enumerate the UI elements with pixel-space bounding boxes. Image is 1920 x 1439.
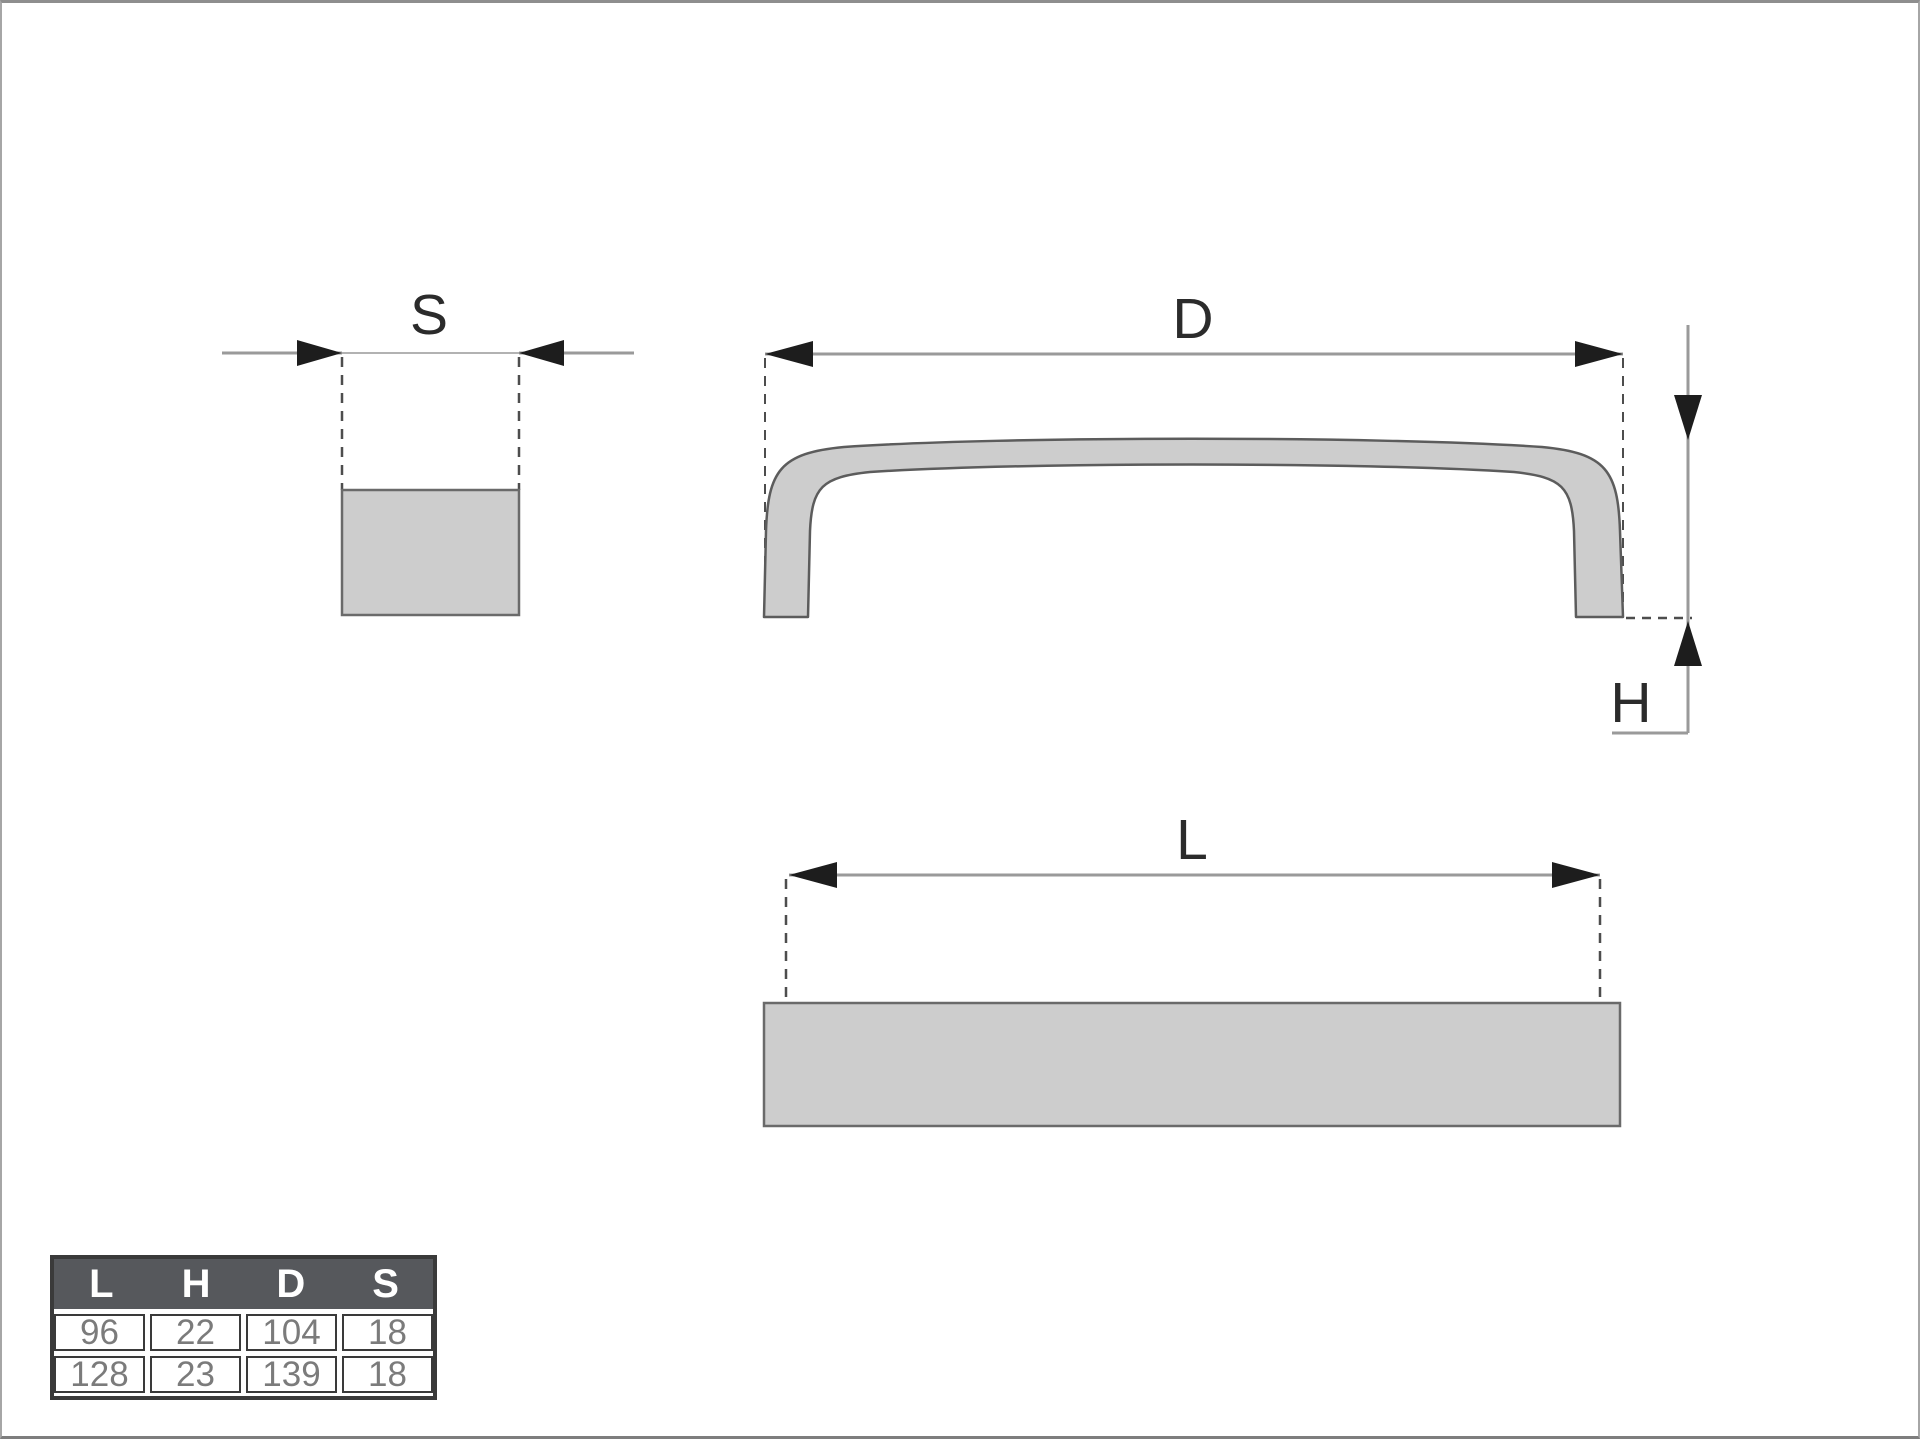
spec-table-header-h: H: [149, 1259, 244, 1309]
dim-label-d: D: [1172, 286, 1213, 352]
spec-table-header-d: D: [244, 1259, 339, 1309]
s-dimension-group: [222, 340, 634, 615]
spec-cell-d: 104: [246, 1314, 337, 1351]
l-dim-right-arrowhead: [1552, 862, 1600, 888]
spec-table-row: 128 23 139 18: [54, 1356, 433, 1393]
handle-front-view-bar: [764, 1003, 1620, 1126]
spec-table: L H D S 96 22 104 18 128 23 139 18: [50, 1255, 437, 1400]
d-dim-left-arrowhead: [765, 341, 813, 367]
dim-label-s: S: [410, 282, 448, 348]
spec-cell-h: 22: [150, 1314, 241, 1351]
h-dim-down-arrowhead: [1674, 395, 1702, 440]
d-dimension-group: [765, 341, 1623, 613]
handle-profile-group: [764, 439, 1623, 617]
spec-cell-l: 128: [54, 1356, 145, 1393]
handle-profile-shape: [764, 439, 1623, 617]
dim-label-l: L: [1176, 807, 1208, 873]
spec-cell-s: 18: [342, 1314, 433, 1351]
handle-cross-section-rect: [342, 490, 519, 615]
l-dimension-group: [764, 862, 1620, 1126]
spec-table-header-l: L: [54, 1259, 149, 1309]
spec-table-header-row: L H D S: [54, 1259, 433, 1309]
spec-table-header-s: S: [338, 1259, 433, 1309]
spec-cell-l: 96: [54, 1314, 145, 1351]
s-dim-left-arrowhead: [297, 340, 342, 366]
dim-label-h: H: [1610, 670, 1651, 736]
technical-drawing-page: S D H L L H D S 96 22 104 18 128 23 139 …: [0, 0, 1920, 1439]
s-dim-right-arrowhead: [519, 340, 564, 366]
spec-cell-d: 139: [246, 1356, 337, 1393]
h-dim-up-arrowhead: [1674, 621, 1702, 666]
spec-cell-h: 23: [150, 1356, 241, 1393]
spec-cell-s: 18: [342, 1356, 433, 1393]
spec-table-row: 96 22 104 18: [54, 1314, 433, 1351]
d-dim-right-arrowhead: [1575, 341, 1623, 367]
l-dim-left-arrowhead: [789, 862, 837, 888]
